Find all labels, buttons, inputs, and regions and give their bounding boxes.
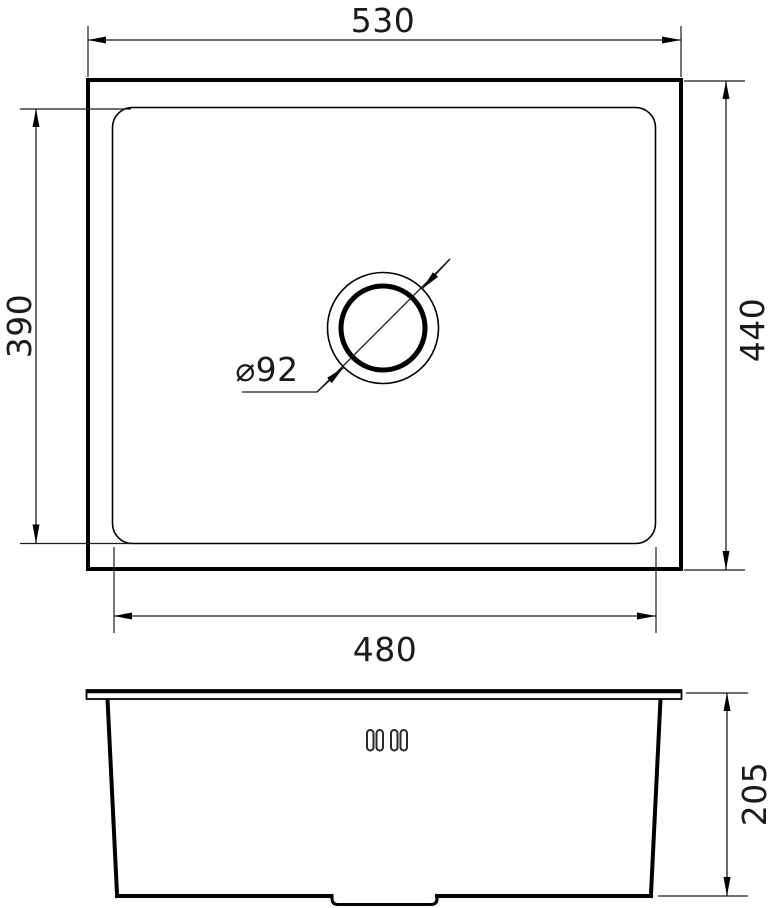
- dim-label-390: 390: [0, 294, 39, 359]
- top-view: 530 390 440 480: [0, 1, 772, 669]
- overflow-slot: [391, 730, 398, 751]
- left-wall: [108, 699, 118, 894]
- dim-bowl-depth: 390: [0, 109, 131, 544]
- overflow-slots: [367, 730, 407, 751]
- overflow-slot: [377, 730, 384, 751]
- drain-dim-arrow-upper: [423, 259, 450, 288]
- dim-bowl-width: 480: [114, 547, 656, 669]
- dim-outer-depth: 440: [684, 81, 772, 570]
- dim-label-440: 440: [733, 298, 772, 363]
- overflow-slot: [367, 730, 374, 751]
- drain-dim-arrow-lower: [317, 368, 343, 392]
- dim-label-205: 205: [735, 762, 772, 827]
- drawing-canvas: 530 390 440 480: [0, 0, 772, 908]
- dim-label-530: 530: [351, 1, 416, 40]
- dim-label-drain: ⌀92: [235, 350, 298, 389]
- right-wall: [651, 699, 661, 894]
- drain-hole-circle: [341, 286, 425, 370]
- dim-label-480: 480: [353, 630, 418, 669]
- sink-technical-drawing: 530 390 440 480: [0, 0, 772, 908]
- drain-flange-circle: [328, 273, 439, 384]
- side-view: 205: [86, 690, 772, 905]
- overflow-slot: [401, 730, 408, 751]
- dim-height: 205: [658, 693, 772, 896]
- drain-stub: [332, 894, 437, 905]
- dim-outer-width: 530: [88, 1, 681, 77]
